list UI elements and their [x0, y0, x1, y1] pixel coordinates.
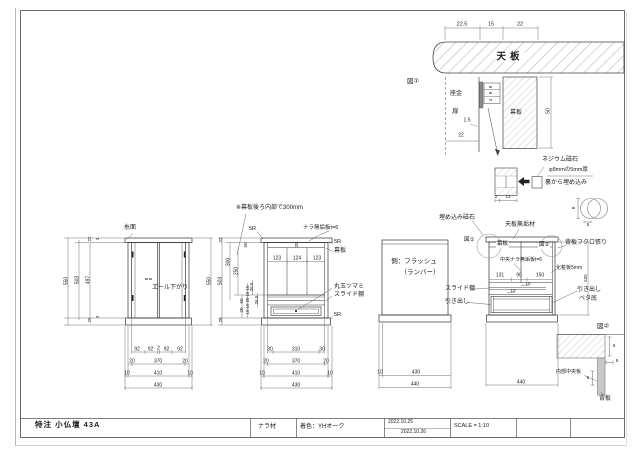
drawing-sheet: 特注 小仏壇 43A ナラ材 着色：YHオーク 2022.10.25 2022.… [0, 0, 640, 452]
front-dim-503: 503 [76, 276, 81, 284]
color-label: 着色：YHオーク [300, 424, 344, 430]
section-bay-1: 123 [273, 256, 281, 261]
fig1-label: 図① [407, 79, 419, 86]
section-knob-label: 丸玉ツマミ [334, 284, 364, 290]
rv-width-3: 150 [536, 274, 544, 279]
front-dim-497: 497 [87, 276, 92, 284]
front-dim-8b: 8 [149, 278, 154, 281]
section-r1-3: 30 [319, 348, 325, 353]
rv-fig2-label: 図② [538, 243, 550, 249]
date-1: 2022.10.25 [388, 420, 413, 425]
rv-drawer-label: 引き出し [445, 299, 469, 305]
back-board-label: 背板 [599, 396, 611, 402]
fig1-dim-top-1: 22.5 [457, 22, 468, 28]
section-dim-265a: 26.5 [250, 283, 255, 292]
right-view-dimension-lines [486, 242, 590, 387]
front-dim-550-left: 550 [65, 277, 70, 285]
front-r1-3: 2 [157, 347, 160, 352]
front-dim-3-top: 3 [96, 238, 101, 241]
section-stack-a2: 20 [240, 307, 245, 312]
date-2: 2022.10.26 [401, 430, 426, 435]
fig1-dim-small-3: 4 [489, 99, 494, 102]
section-makuita-label: 幕板 [334, 248, 346, 254]
rv-width-1: 131 [496, 274, 504, 279]
kesho-label: 化粧板5mm [556, 266, 582, 271]
front-r1-2: 92 [148, 348, 154, 353]
magnet-name: ネジウム磁石 [542, 157, 578, 163]
fig2-dim-6b: 6 [587, 376, 590, 381]
section-dim-300: 300 [227, 258, 232, 266]
front-r3-2: 410 [154, 371, 162, 376]
section-dim-22: 22 [219, 237, 224, 242]
right-view-drawing [468, 221, 577, 323]
front-r2-2: 370 [154, 359, 162, 364]
section-r2-3: 20 [323, 359, 329, 364]
section-5r-top: 5R [249, 227, 256, 233]
zagane-label: 座金 [450, 91, 462, 97]
magnet-embed-note: 裏から埋め込み [545, 180, 587, 186]
rv-drawer2-label: 引き出し [577, 287, 601, 293]
tenban-label: 天板 [495, 52, 524, 62]
section-dim-503: 503 [219, 277, 224, 285]
section-stack-a1: 50 [240, 298, 245, 303]
side-r1-2: 430 [412, 371, 420, 376]
section-r1-1: 30 [267, 348, 273, 353]
section-5r-bottom: 5R [334, 313, 341, 319]
material-label: ナラ材 [258, 424, 276, 430]
fig2-dim-5: 5 [616, 359, 619, 364]
section-r3-2: 410 [292, 371, 300, 376]
section-stack-b5: 15 [245, 309, 250, 314]
rv-dim-525: 525 [584, 274, 589, 282]
section-stack-b4: 15 [245, 303, 250, 308]
rv-dim-440: 440 [517, 380, 525, 385]
side-view-dimension-lines [379, 323, 451, 389]
side-label-line2: （ランバー） [401, 270, 440, 277]
magnet-dim-8: 8 [572, 207, 577, 210]
section-stack-b2: 15 [245, 291, 250, 296]
fig1-dim-50: 50 [547, 108, 552, 114]
sehan-label: 背板フクロ張り [565, 240, 607, 246]
rv-makuita-label: 幕板 [496, 242, 509, 248]
front-dim-25-bottom: 25 [88, 317, 93, 322]
sagari-label: エール下がり [152, 285, 188, 291]
front-r1-5: 92 [177, 348, 183, 353]
center-board-label: 中央ナラ無垢板t=6 [500, 258, 542, 263]
section-dim-20: 20 [295, 242, 300, 247]
magnet-callout-label: 埋め込み磁石 [439, 215, 475, 221]
rv-width-2: 90 [516, 274, 522, 279]
rv-betazoko-label: ベタ底 [579, 296, 597, 302]
fig1-dim-top-3: 22 [517, 22, 523, 28]
section-dim-265b: 26.5 [255, 296, 260, 305]
itomen-label: 糸面 [124, 225, 136, 231]
rv-slide-label: スライド棚 [445, 286, 475, 292]
magnet-size: φ8mmの5mm厚 [549, 168, 588, 174]
section-r2-2: 370 [292, 359, 300, 364]
front-dim-3-bottom: 3 [96, 316, 101, 319]
fig1-dim-small-2: 8 [489, 92, 494, 95]
section-stack-b3: 20 [245, 297, 250, 302]
front-r2-1: 20 [129, 359, 135, 364]
hinge-marks [132, 252, 186, 302]
makuita-note: ※幕板後ろ内部で300mm [236, 205, 303, 211]
sheet-title: 特注 小仏壇 43A [35, 421, 100, 429]
front-dim-22-top: 22 [88, 236, 93, 241]
section-slide-label: スライド棚 [334, 292, 364, 298]
magnet-dim-5: 5 [587, 223, 590, 228]
magnet-dim-2: 2 [495, 195, 498, 200]
section-bay-3: 123 [313, 256, 321, 261]
section-r2-1: 20 [263, 359, 269, 364]
rv-dim-10a: 10 [525, 282, 530, 287]
section-5r-right: 5R [334, 240, 341, 246]
fig1-dim-top-2: 15 [488, 22, 494, 28]
front-r4: 430 [154, 383, 162, 388]
rv-fig1-label: 図① [463, 238, 475, 244]
front-r2-3: 20 [182, 359, 188, 364]
section-r3-3: 10 [327, 371, 333, 376]
front-view-dimension-lines [64, 238, 213, 391]
magnet-detail-drawing [495, 167, 608, 223]
section-dim-25: 25 [219, 317, 224, 322]
section-dim-50: 50 [244, 242, 249, 247]
makuita-label-fig1: 幕板 [509, 110, 523, 116]
section-r4: 430 [292, 383, 300, 388]
front-r1-4: 92 [164, 348, 170, 353]
fig1-dim-gap: 1.5 [464, 119, 471, 124]
section-r3-1: 10 [259, 371, 265, 376]
tobira-label: 扉 [452, 109, 459, 116]
fig2-dim-6a: 6 [613, 344, 616, 349]
side-view-drawing [379, 240, 451, 322]
side-r2: 440 [411, 383, 419, 388]
scale-label: SCALE = 1:10 [454, 424, 489, 430]
inner-board-label: 内部中央板 [556, 370, 581, 375]
front-r1-1: 92 [134, 348, 140, 353]
front-r3-3: 10 [187, 371, 193, 376]
front-dim-550-right: 550 [208, 277, 213, 285]
section-r1-2: 310 [292, 348, 300, 353]
front-view-drawing [125, 234, 192, 326]
section-dim-250: 250 [235, 267, 240, 275]
rv-dim-10b: 10 [510, 289, 515, 294]
section-bay-2: 124 [293, 256, 301, 261]
tenban-muku-label: 天板無垢材 [505, 222, 535, 228]
section-stack-b1: 15 [245, 285, 250, 290]
fig1-dim-22: 22 [458, 134, 464, 139]
side-label-line1: 側：フラッシュ [391, 259, 437, 266]
side-r1-1: 10 [377, 371, 383, 376]
front-r3-1: 10 [124, 371, 130, 376]
fig1-dim-small-1: 8 [489, 85, 494, 88]
fig2-label: 図② [597, 324, 609, 331]
magnet-dim-13: 13 [505, 195, 510, 200]
section-board-label: ナラ無垢板t=6 [303, 226, 338, 232]
